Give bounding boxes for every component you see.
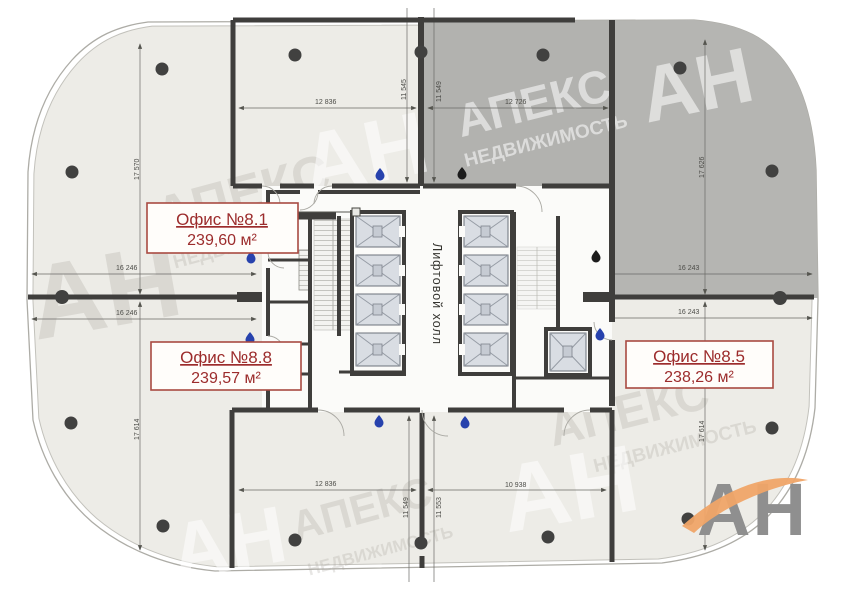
elevator-cell	[459, 216, 508, 247]
column	[156, 63, 169, 76]
elevator-hall-label: Лифтовой холл	[430, 243, 444, 345]
elevator-cell	[356, 255, 405, 286]
dimension-label: 17 570	[134, 158, 141, 180]
wall-end-cap	[237, 292, 262, 302]
elevator-cell	[356, 216, 405, 247]
column	[773, 291, 787, 305]
dimension-label: 10 938	[505, 482, 527, 489]
office-name: Офис №8.8	[180, 348, 272, 367]
dimension-label: 17 626	[699, 156, 706, 178]
watermark-an: АН	[164, 489, 293, 597]
column	[65, 417, 78, 430]
dimension-label: 16 243	[678, 309, 700, 316]
column	[674, 62, 687, 75]
elevator-cell	[356, 333, 405, 366]
dimension-label: 16 246	[116, 265, 138, 272]
agency-logo: АН	[682, 468, 808, 551]
wall-end-cap	[583, 292, 609, 302]
column	[157, 520, 170, 533]
dimension-label: 17 614	[699, 420, 706, 442]
column	[766, 165, 779, 178]
dimension-label: 16 246	[116, 310, 138, 317]
dimension-label: 11 553	[436, 497, 443, 518]
column	[289, 49, 302, 62]
column	[415, 46, 428, 59]
dimension-label: 12 726	[505, 99, 527, 106]
office-area: 239,57 м²	[191, 370, 261, 387]
elevator-cell	[356, 294, 405, 325]
floor-plan-page: АН АПЕКС НЕДВИЖИМОСТЬ АН АПЕКС НЕДВИЖИМО…	[0, 0, 845, 600]
office-label-8-8: Офис №8.8 239,57 м²	[151, 342, 301, 390]
elevator-cell	[459, 333, 508, 366]
column	[415, 537, 428, 550]
dimension-label: 17 614	[134, 418, 141, 440]
dimension-label: 16 243	[678, 265, 700, 272]
office-area: 238,26 м²	[664, 369, 734, 386]
office-name: Офис №8.1	[176, 210, 268, 229]
elevator-cell	[459, 294, 508, 325]
office-label-8-5: Офис №8.5 238,26 м²	[626, 341, 773, 388]
dimension-label: 12 836	[315, 481, 337, 488]
column	[289, 534, 302, 547]
office-area: 239,60 м²	[187, 232, 257, 249]
dimension-label: 11 549	[403, 497, 410, 518]
dimension-label: 11 545	[401, 79, 408, 100]
floor-plan-canvas: АН АПЕКС НЕДВИЖИМОСТЬ АН АПЕКС НЕДВИЖИМО…	[0, 0, 845, 600]
column	[537, 49, 550, 62]
dimension-label: 12 836	[315, 99, 337, 106]
column	[66, 166, 79, 179]
column	[542, 531, 555, 544]
dimension-label: 11 549	[436, 81, 443, 102]
column	[55, 290, 69, 304]
office-label-8-1: Офис №8.1 239,60 м²	[147, 203, 298, 253]
elevator-cell	[459, 255, 508, 286]
label-leader-anchor	[352, 208, 360, 216]
office-name: Офис №8.5	[653, 347, 745, 366]
elevator-cell	[546, 329, 590, 375]
column	[766, 422, 779, 435]
